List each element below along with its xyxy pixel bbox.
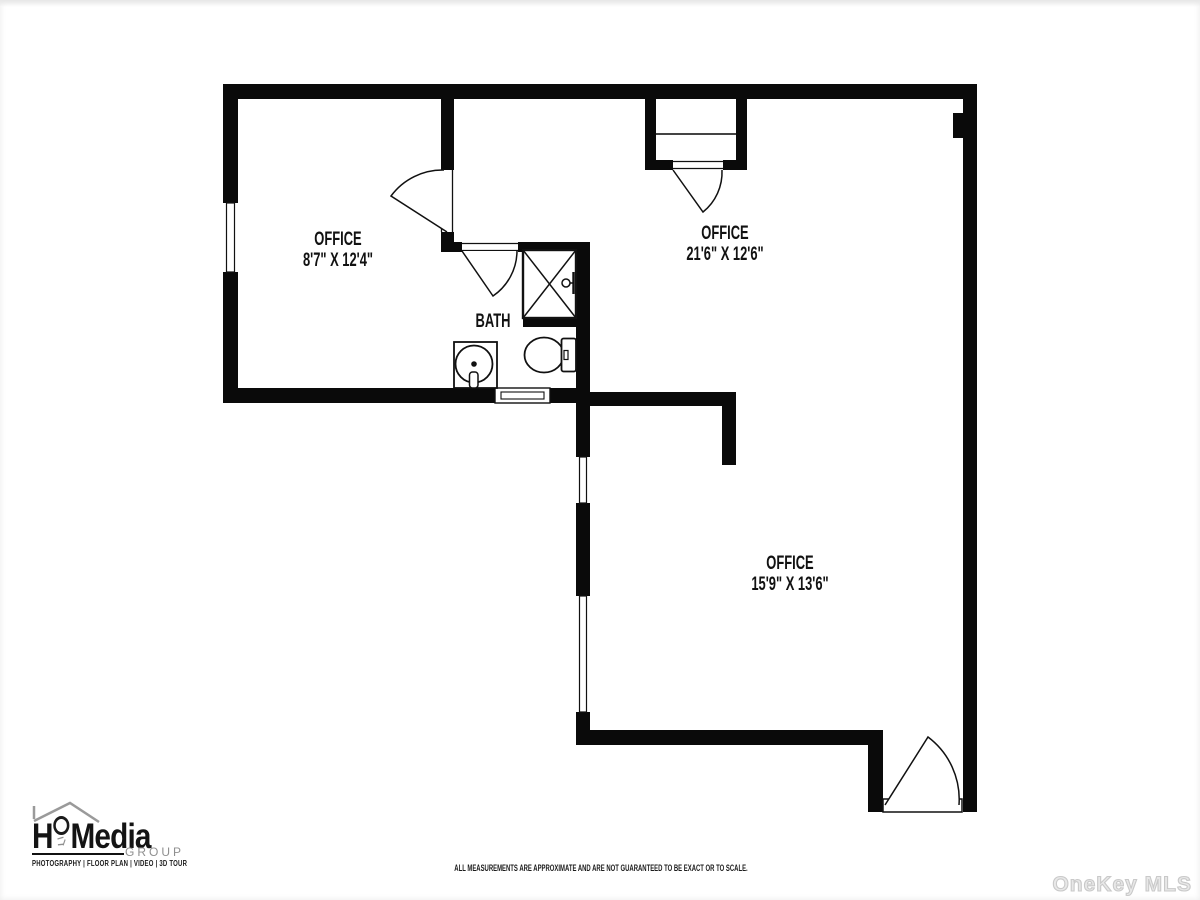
door-office1 xyxy=(391,170,454,232)
door-entry xyxy=(883,737,962,812)
shower xyxy=(523,250,576,318)
door-bath xyxy=(462,242,518,296)
window-cap xyxy=(223,195,238,203)
wall-left-lower xyxy=(223,280,238,403)
wall-step xyxy=(868,730,883,812)
window-glass xyxy=(501,392,544,399)
window-cap xyxy=(223,272,238,280)
door-swing xyxy=(673,170,722,212)
wall-top xyxy=(223,84,977,99)
logo-underline xyxy=(32,853,124,855)
room-dims: 15'9" X 13'6" xyxy=(751,574,828,595)
toilet xyxy=(525,338,577,373)
window-office1-left xyxy=(223,195,238,280)
window-cap xyxy=(576,712,590,720)
camera-aperture-icon xyxy=(53,816,69,835)
onekey-mls-watermark: OneKey MLS xyxy=(1052,873,1192,897)
window-glass xyxy=(580,596,587,712)
room-name: BATH xyxy=(476,311,511,332)
room-label-bath: BATH xyxy=(467,311,518,332)
window-bath-bottom xyxy=(495,388,550,403)
sink-faucet xyxy=(470,372,479,388)
vestibule-wall-right xyxy=(736,97,747,168)
room-name: OFFICE xyxy=(751,553,828,574)
logo-prefix: H xyxy=(32,817,53,856)
wall-left-upper xyxy=(223,84,238,195)
wall-stub xyxy=(722,392,736,465)
vestibule-wall-left xyxy=(645,97,656,168)
sink xyxy=(454,342,497,388)
room-label-office2: OFFICE 21'6" X 12'6" xyxy=(668,223,782,265)
room-name: OFFICE xyxy=(303,229,373,250)
room-label-office1: OFFICE 8'7" X 12'4" xyxy=(286,229,389,271)
room-name: OFFICE xyxy=(686,223,763,244)
shower-valve-knob xyxy=(562,279,570,287)
sink-drain xyxy=(471,361,477,367)
door-swing xyxy=(885,737,959,805)
window-cap xyxy=(576,450,590,457)
room-dims: 8'7" X 12'4" xyxy=(303,250,373,271)
wall-right xyxy=(963,84,977,812)
toilet-button xyxy=(564,351,568,360)
vestibule-wall-bottom-left xyxy=(645,160,673,170)
wall-below-shower xyxy=(523,318,590,327)
homedia-logo: HMedia GROUP PHOTOGRAPHY | FLOOR PLAN | … xyxy=(30,798,190,870)
floor-plan-page: OFFICE 8'7" X 12'4" OFFICE 21'6" X 12'6"… xyxy=(0,0,1200,900)
wall-interior-upper xyxy=(441,97,454,170)
wall-bottom xyxy=(576,730,882,745)
wall-bath-top-left xyxy=(441,242,462,252)
room-dims: 21'6" X 12'6" xyxy=(686,244,763,265)
door-swing xyxy=(391,170,447,232)
vestibule-wall-bottom-right xyxy=(723,160,747,170)
window-glass xyxy=(227,203,235,272)
walls xyxy=(223,84,977,812)
room-label-office3: OFFICE 15'9" X 13'6" xyxy=(733,553,847,595)
door-vestibule xyxy=(656,134,736,212)
toilet-bowl xyxy=(525,338,564,373)
logo-group-text: GROUP xyxy=(125,845,184,859)
window-cap xyxy=(576,503,590,510)
window-office3-upper xyxy=(576,450,590,510)
window-cap xyxy=(576,588,590,596)
wall-hall xyxy=(576,392,736,406)
window-office3-lower xyxy=(576,588,590,720)
measurements-disclaimer: ALL MEASUREMENTS ARE APPROXIMATE AND ARE… xyxy=(379,863,824,873)
wall-pilaster xyxy=(953,113,963,138)
logo-tagline: PHOTOGRAPHY | FLOOR PLAN | VIDEO | 3D TO… xyxy=(32,859,239,868)
floor-plan-drawing xyxy=(0,0,1200,900)
door-swing xyxy=(462,251,517,296)
window-glass xyxy=(580,457,587,503)
